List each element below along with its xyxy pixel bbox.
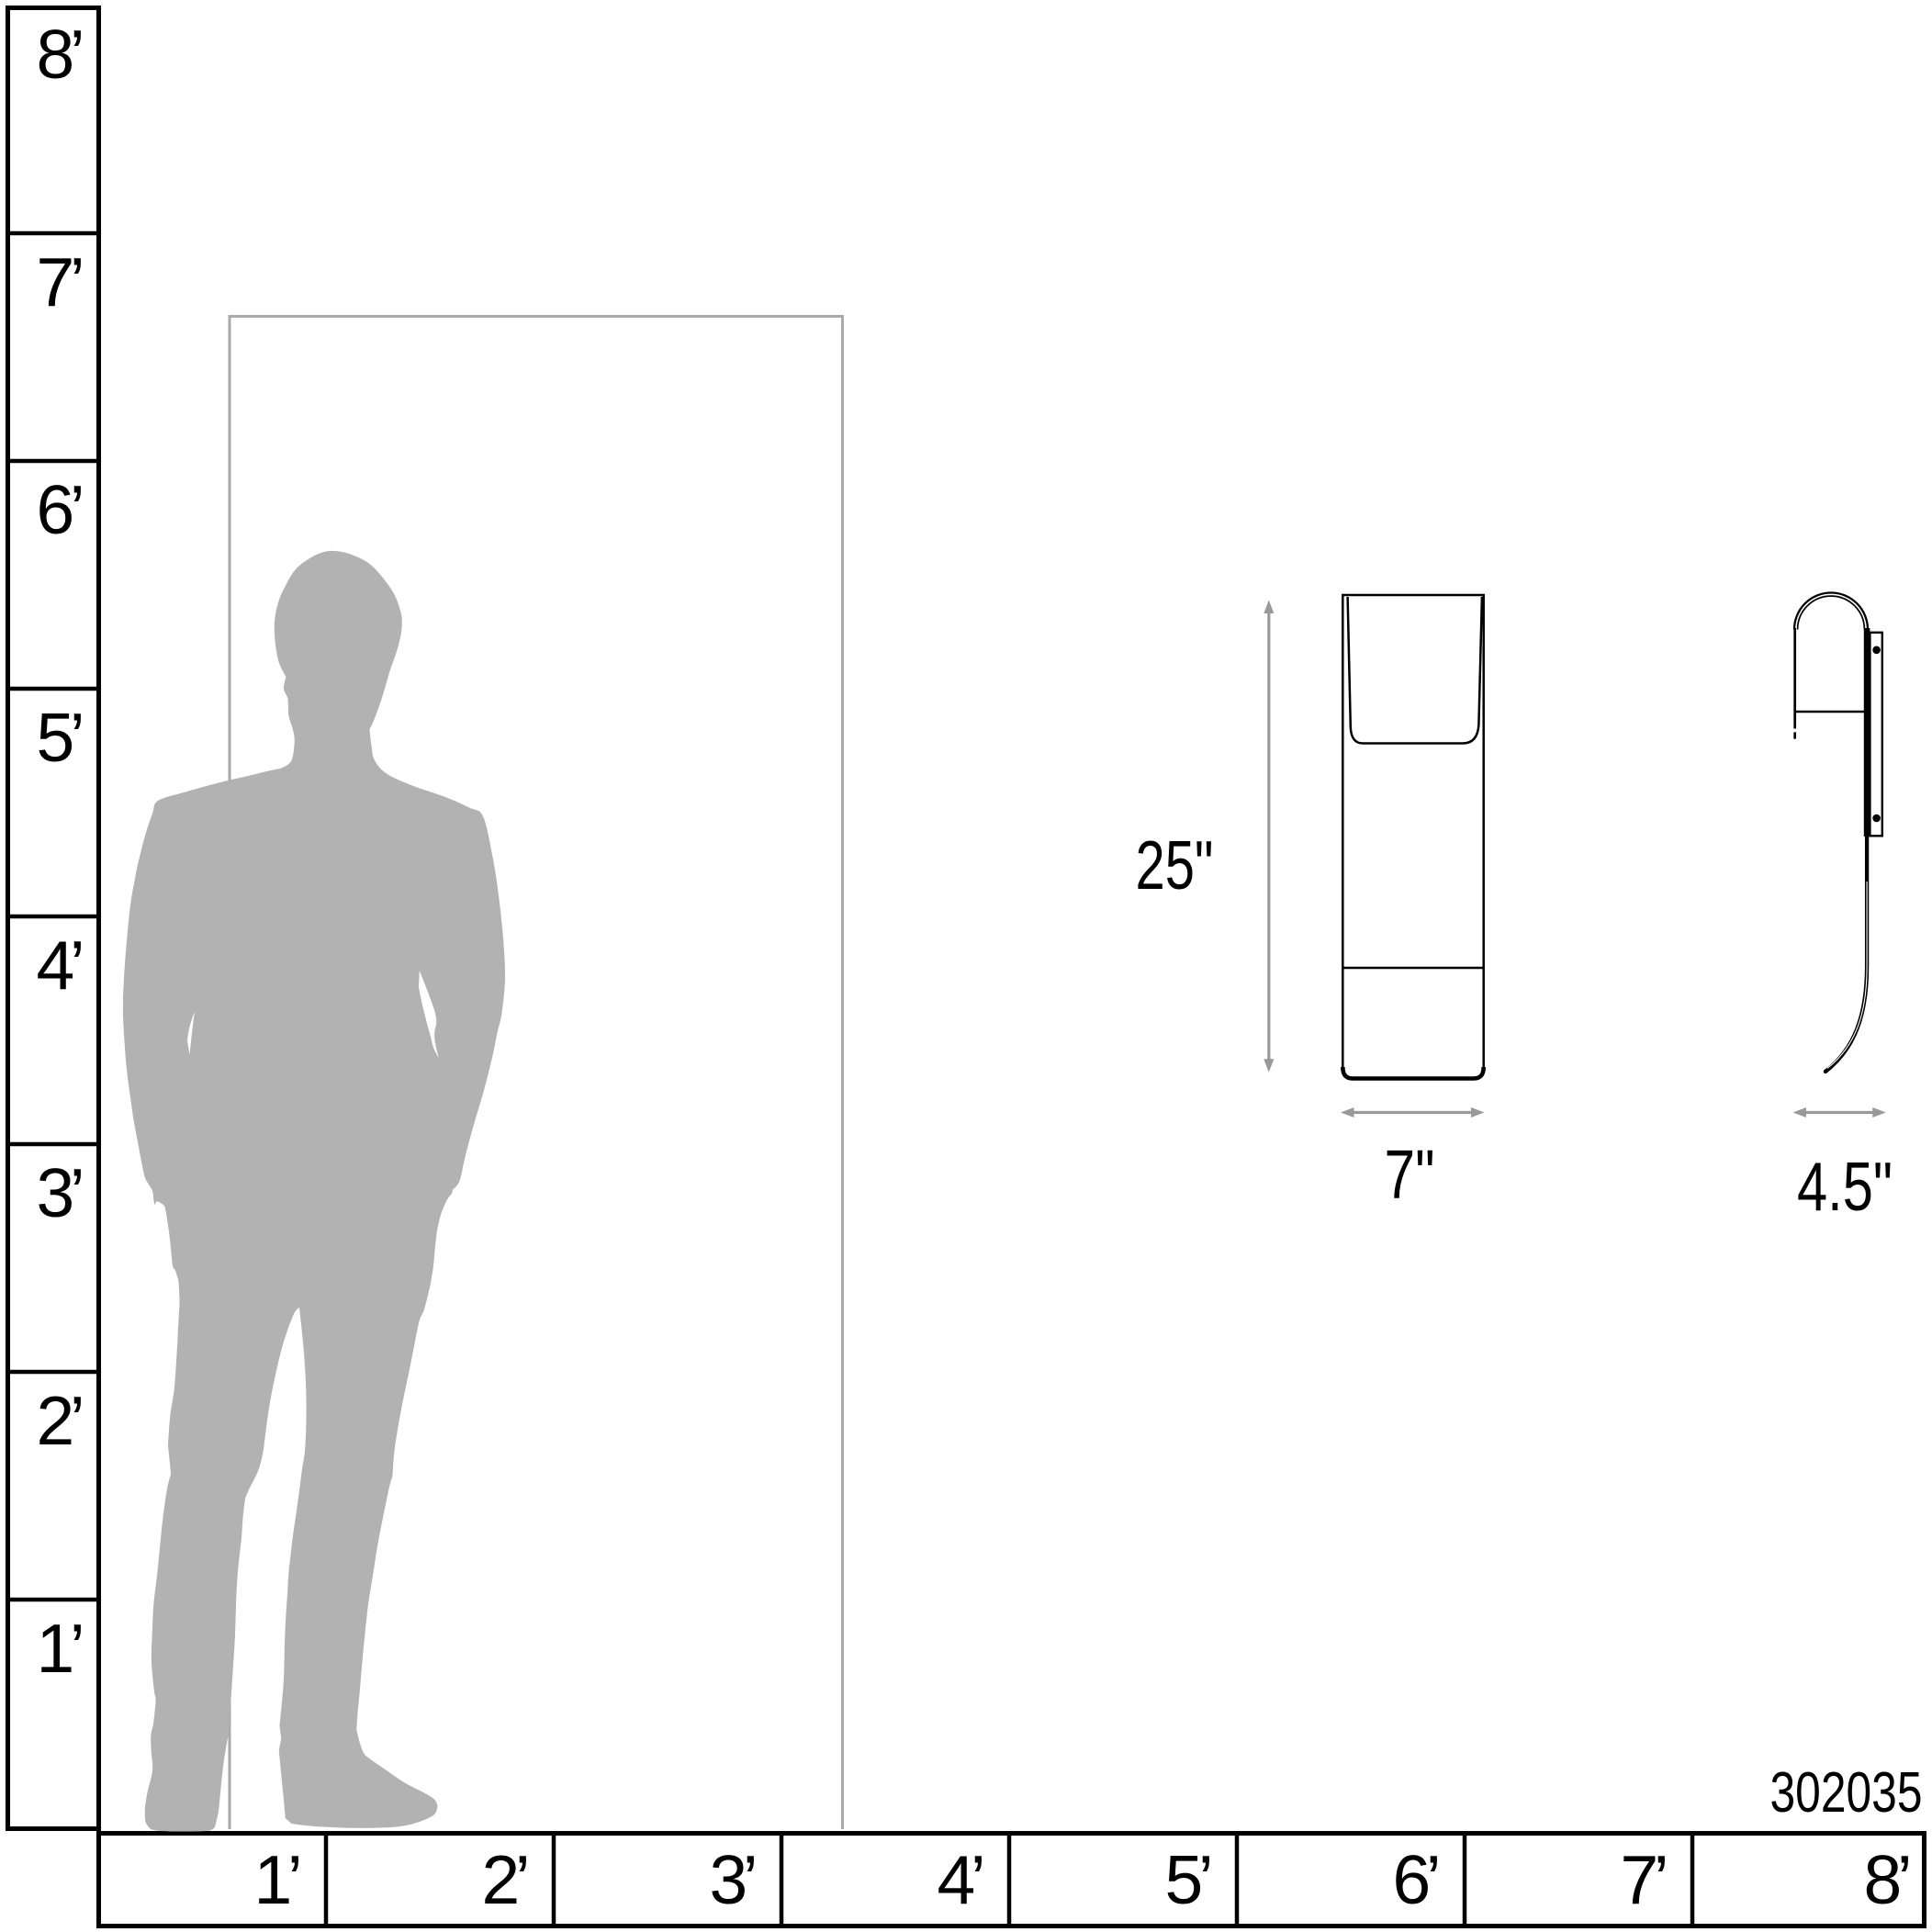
svg-text:1’: 1’ [37, 1610, 85, 1687]
svg-text:8’: 8’ [37, 16, 85, 93]
svg-text:2’: 2’ [37, 1382, 85, 1459]
svg-text:1’: 1’ [254, 1841, 303, 1918]
svg-text:5’: 5’ [1165, 1841, 1214, 1918]
svg-text:7": 7" [1385, 1136, 1435, 1213]
svg-text:3’: 3’ [710, 1841, 758, 1918]
svg-text:2’: 2’ [482, 1841, 531, 1918]
svg-text:8’: 8’ [1864, 1841, 1913, 1918]
svg-text:3’: 3’ [37, 1154, 85, 1231]
svg-text:6’: 6’ [1393, 1841, 1442, 1918]
svg-text:5’: 5’ [37, 699, 85, 776]
svg-text:302035: 302035 [1770, 1761, 1923, 1825]
svg-text:4.5": 4.5" [1797, 1148, 1893, 1225]
svg-text:4’: 4’ [37, 927, 85, 1004]
svg-text:25": 25" [1136, 826, 1214, 904]
svg-text:4’: 4’ [938, 1841, 986, 1918]
svg-text:7’: 7’ [1621, 1841, 1669, 1918]
svg-text:7’: 7’ [37, 243, 85, 320]
svg-text:6’: 6’ [37, 471, 85, 548]
